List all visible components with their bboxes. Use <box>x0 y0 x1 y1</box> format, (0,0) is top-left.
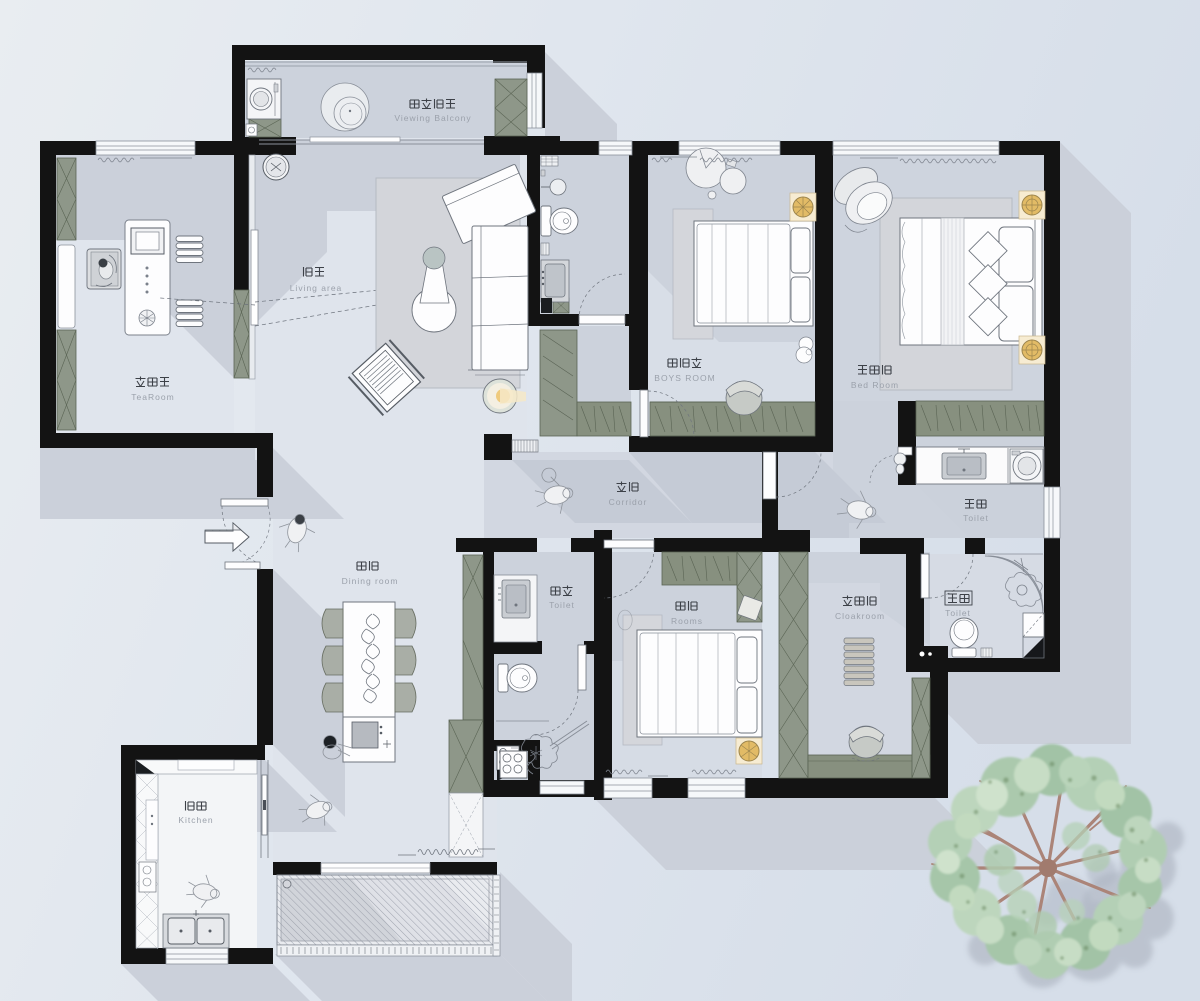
svg-text:Cloakroom: Cloakroom <box>835 611 885 621</box>
svg-text:Bed Room: Bed Room <box>851 380 899 390</box>
svg-text:Living area: Living area <box>290 283 343 293</box>
svg-text:Toilet: Toilet <box>945 608 971 618</box>
svg-text:Kitchen: Kitchen <box>178 815 213 825</box>
svg-text:Toilet: Toilet <box>549 600 575 610</box>
svg-text:Rooms: Rooms <box>671 616 703 626</box>
svg-text:Corridor: Corridor <box>609 497 648 507</box>
svg-text:Viewing Balcony: Viewing Balcony <box>394 113 471 123</box>
svg-text:Dining room: Dining room <box>342 576 399 586</box>
svg-text:BOYS ROOM: BOYS ROOM <box>654 373 715 383</box>
svg-text:Toilet: Toilet <box>963 513 989 523</box>
svg-text:TeaRoom: TeaRoom <box>131 392 174 402</box>
